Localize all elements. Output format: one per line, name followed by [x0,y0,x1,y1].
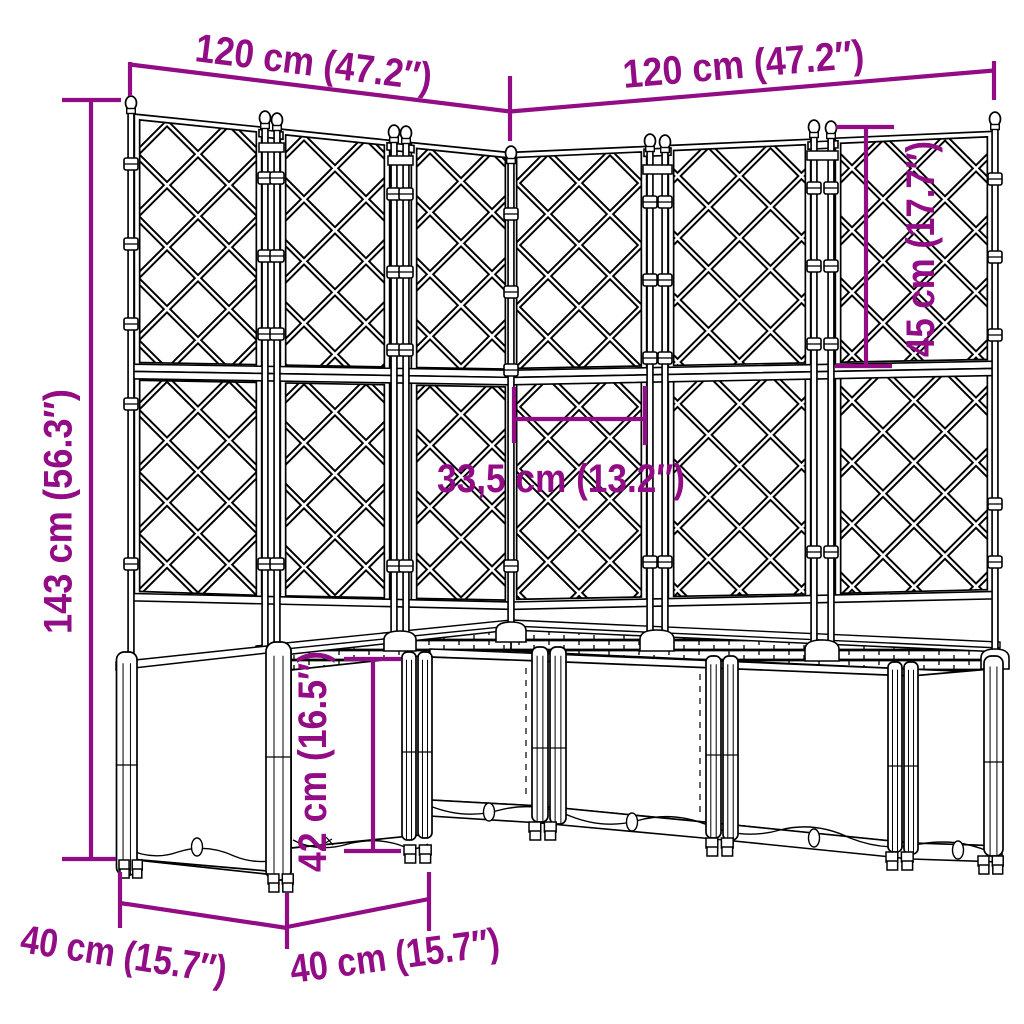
svg-text:33,5 cm (13.2″): 33,5 cm (13.2″) [437,457,685,501]
svg-text:45 cm (17.7″): 45 cm (17.7″) [899,141,943,357]
svg-text:42 cm (16.5″): 42 cm (16.5″) [291,651,335,872]
svg-text:143 cm (56.3″): 143 cm (56.3″) [37,389,81,634]
